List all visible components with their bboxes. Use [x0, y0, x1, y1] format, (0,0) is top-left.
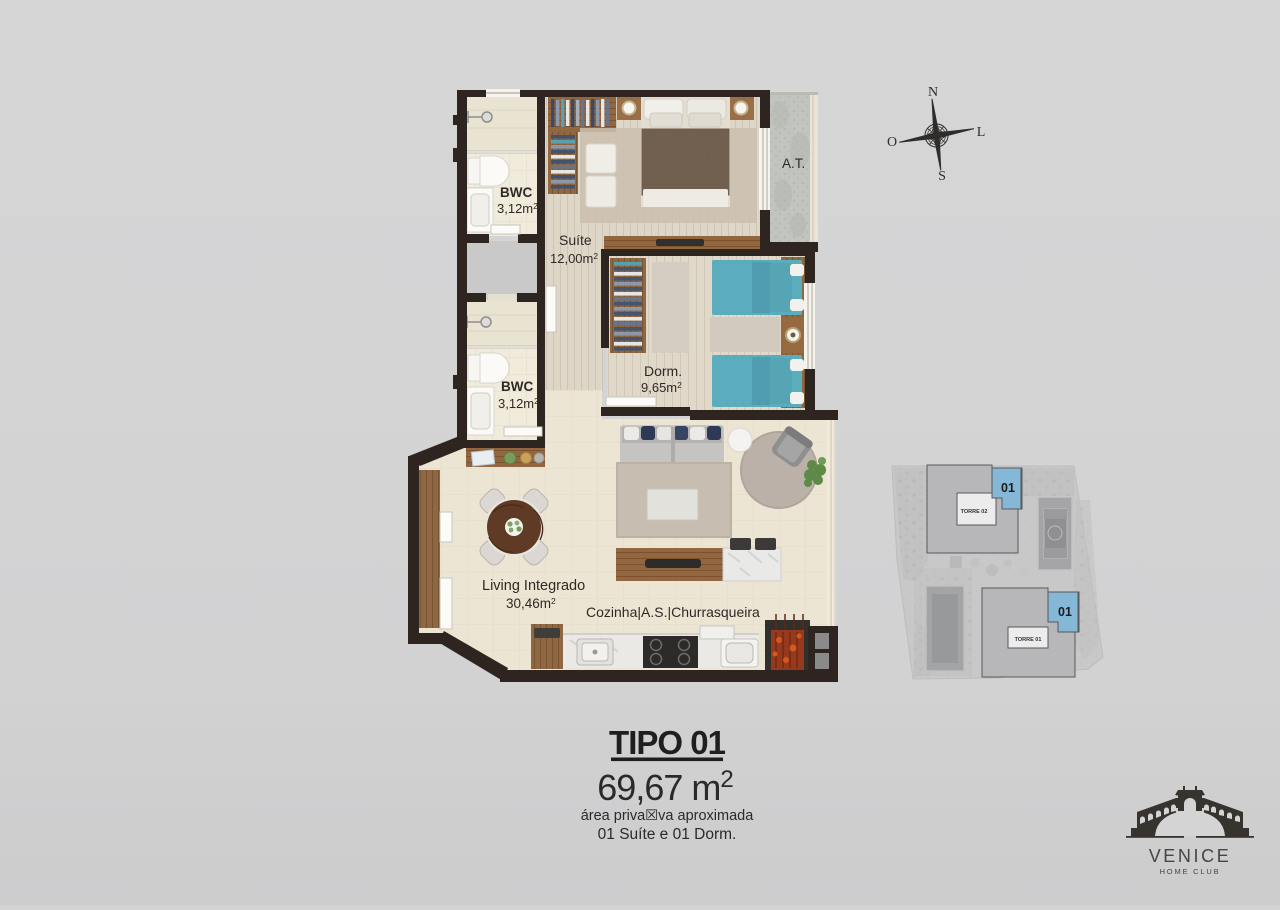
- svg-text:TORRE 02: TORRE 02: [961, 509, 988, 515]
- svg-text:30,46m2: 30,46m2: [506, 596, 556, 611]
- svg-text:12,00m2: 12,00m2: [550, 251, 598, 266]
- svg-text:BWC: BWC: [501, 379, 533, 394]
- svg-text:A.T.: A.T.: [782, 156, 805, 171]
- svg-text:HOME CLUB: HOME CLUB: [1160, 867, 1221, 876]
- svg-text:S: S: [938, 169, 946, 184]
- svg-text:TORRE 01: TORRE 01: [1015, 637, 1042, 643]
- svg-text:Living Integrado: Living Integrado: [482, 578, 585, 594]
- svg-text:Suíte: Suíte: [559, 232, 592, 248]
- svg-text:área priva☒va aproximada: área priva☒va aproximada: [581, 808, 755, 824]
- svg-text:01: 01: [1058, 605, 1072, 619]
- svg-text:TIPO 01: TIPO 01: [609, 724, 726, 761]
- svg-text:69,67 m2: 69,67 m2: [597, 766, 733, 808]
- svg-text:01 Suíte e 01 Dorm.: 01 Suíte e 01 Dorm.: [598, 826, 737, 843]
- svg-text:Dorm.: Dorm.: [644, 363, 682, 379]
- svg-text:3,12m2: 3,12m2: [498, 396, 539, 411]
- svg-text:3,12m2: 3,12m2: [497, 201, 538, 216]
- svg-text:O: O: [887, 135, 897, 150]
- svg-text:L: L: [977, 125, 986, 140]
- svg-text:BWC: BWC: [500, 185, 532, 200]
- svg-text:9,65m2: 9,65m2: [641, 380, 682, 395]
- svg-text:01: 01: [1001, 481, 1015, 495]
- svg-text:N: N: [928, 85, 938, 100]
- svg-text:VENICE: VENICE: [1149, 846, 1232, 866]
- svg-text:Cozinha|A.S.|Churrasqueira: Cozinha|A.S.|Churrasqueira: [586, 604, 760, 620]
